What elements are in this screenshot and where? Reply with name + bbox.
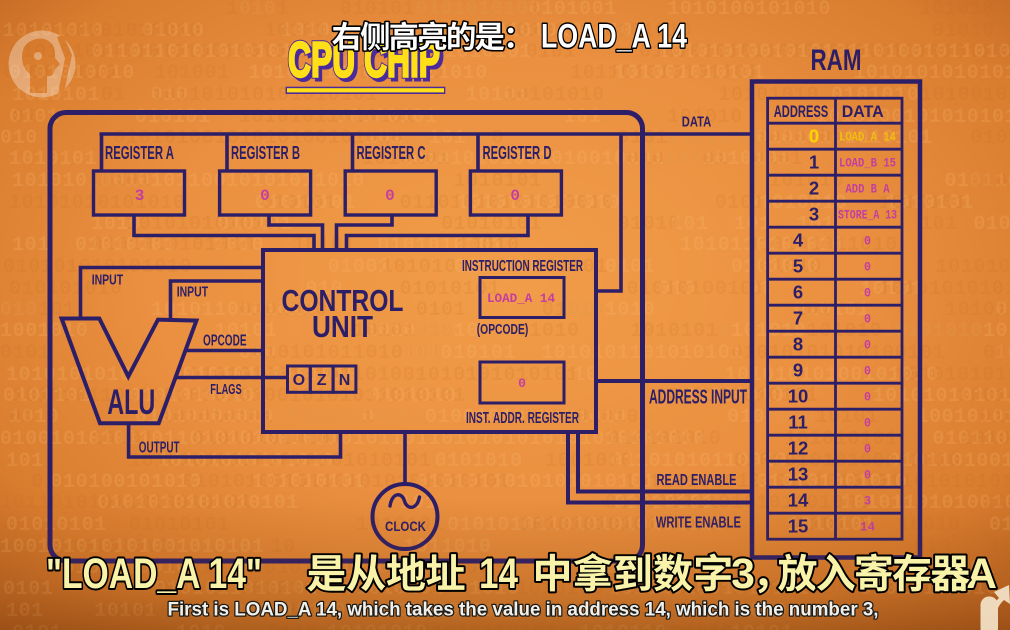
svg-text:0: 0 — [864, 416, 871, 431]
svg-text:A: A — [966, 550, 997, 598]
svg-text:9: 9 — [793, 360, 803, 381]
svg-text:UNIT: UNIT — [312, 309, 373, 344]
svg-text:0: 0 — [864, 286, 871, 301]
svg-text:11: 11 — [788, 412, 808, 433]
svg-text:STORE_A 13: STORE_A 13 — [838, 208, 897, 223]
svg-text:0: 0 — [864, 468, 871, 483]
svg-text:7: 7 — [793, 308, 803, 329]
svg-text:0: 0 — [809, 126, 819, 147]
svg-text:LOAD_B 15: LOAD_B 15 — [839, 156, 896, 171]
svg-text:DATA: DATA — [842, 103, 884, 121]
svg-text:0: 0 — [385, 187, 395, 205]
svg-text:0: 0 — [864, 442, 871, 457]
svg-text:0: 0 — [864, 338, 871, 353]
svg-text:REGISTER B: REGISTER B — [231, 143, 300, 163]
svg-text:REGISTER D: REGISTER D — [483, 143, 552, 163]
svg-text:0: 0 — [510, 187, 520, 205]
svg-text:LOAD_A 14: LOAD_A 14 — [487, 292, 555, 306]
svg-text:14: 14 — [479, 550, 518, 598]
svg-text:0: 0 — [260, 187, 270, 205]
svg-text:3: 3 — [731, 550, 755, 598]
svg-text:First is LOAD_A 14, which take: First is LOAD_A 14, which takes the valu… — [168, 599, 879, 621]
svg-text:10: 10 — [788, 386, 809, 407]
svg-text:0: 0 — [864, 390, 871, 405]
svg-text:0: 0 — [864, 364, 871, 379]
svg-text:REGISTER C: REGISTER C — [357, 143, 426, 163]
svg-text:INSTRUCTION REGISTER: INSTRUCTION REGISTER — [462, 258, 583, 275]
svg-text:3: 3 — [809, 204, 819, 225]
svg-text:DATA: DATA — [682, 114, 712, 131]
svg-text:"LOAD_A 14": "LOAD_A 14" — [46, 550, 262, 598]
svg-text:0: 0 — [864, 312, 871, 327]
svg-text:ADD B A: ADD B A — [846, 182, 890, 197]
svg-text:REGISTER A: REGISTER A — [105, 143, 174, 163]
svg-text:O: O — [293, 372, 305, 389]
svg-text:101010110101010101010010101011: 101010110101010101010010101011010101 101… — [12, 385, 1010, 408]
svg-text:5: 5 — [793, 256, 803, 277]
svg-text:Z: Z — [317, 372, 327, 389]
svg-text:0: 0 — [864, 260, 871, 275]
svg-text:0: 0 — [518, 376, 526, 391]
svg-text:INST. ADDR. REGISTER: INST. ADDR. REGISTER — [466, 410, 579, 427]
svg-text:12: 12 — [788, 438, 809, 459]
svg-text:8: 8 — [793, 334, 803, 355]
svg-text:(OPCODE): (OPCODE) — [477, 322, 529, 338]
svg-text:6: 6 — [793, 282, 803, 303]
svg-text:N: N — [339, 372, 351, 389]
svg-text:10101 0101010101010101: 10101 0101010101010101 101010 — [12, 0, 1010, 21]
svg-text:INPUT: INPUT — [177, 285, 209, 301]
svg-text:2: 2 — [809, 178, 819, 199]
svg-text:ALU: ALU — [107, 383, 155, 422]
svg-text:OUTPUT: OUTPUT — [139, 440, 180, 457]
svg-text:LOAD_A 14: LOAD_A 14 — [839, 130, 896, 145]
svg-text:OPCODE: OPCODE — [203, 333, 247, 350]
svg-text:1: 1 — [809, 152, 819, 173]
svg-text:FLAGS: FLAGS — [210, 382, 242, 398]
svg-text:4: 4 — [793, 230, 804, 251]
svg-text:READ ENABLE: READ ENABLE — [657, 472, 737, 489]
svg-text:ADDRESS: ADDRESS — [774, 103, 829, 121]
svg-text:01 010101001011010101: 01 01010100101101010101010101 1011010101… — [6, 471, 1010, 494]
svg-text:ADDRESS INPUT: ADDRESS INPUT — [649, 386, 747, 409]
svg-text:RAM: RAM — [811, 44, 862, 77]
svg-text:3: 3 — [135, 187, 145, 205]
svg-text:0: 0 — [864, 234, 871, 249]
svg-text:13: 13 — [788, 464, 809, 485]
svg-text:INPUT: INPUT — [92, 273, 124, 289]
svg-text:LOAD_A 14: LOAD_A 14 — [541, 18, 687, 56]
